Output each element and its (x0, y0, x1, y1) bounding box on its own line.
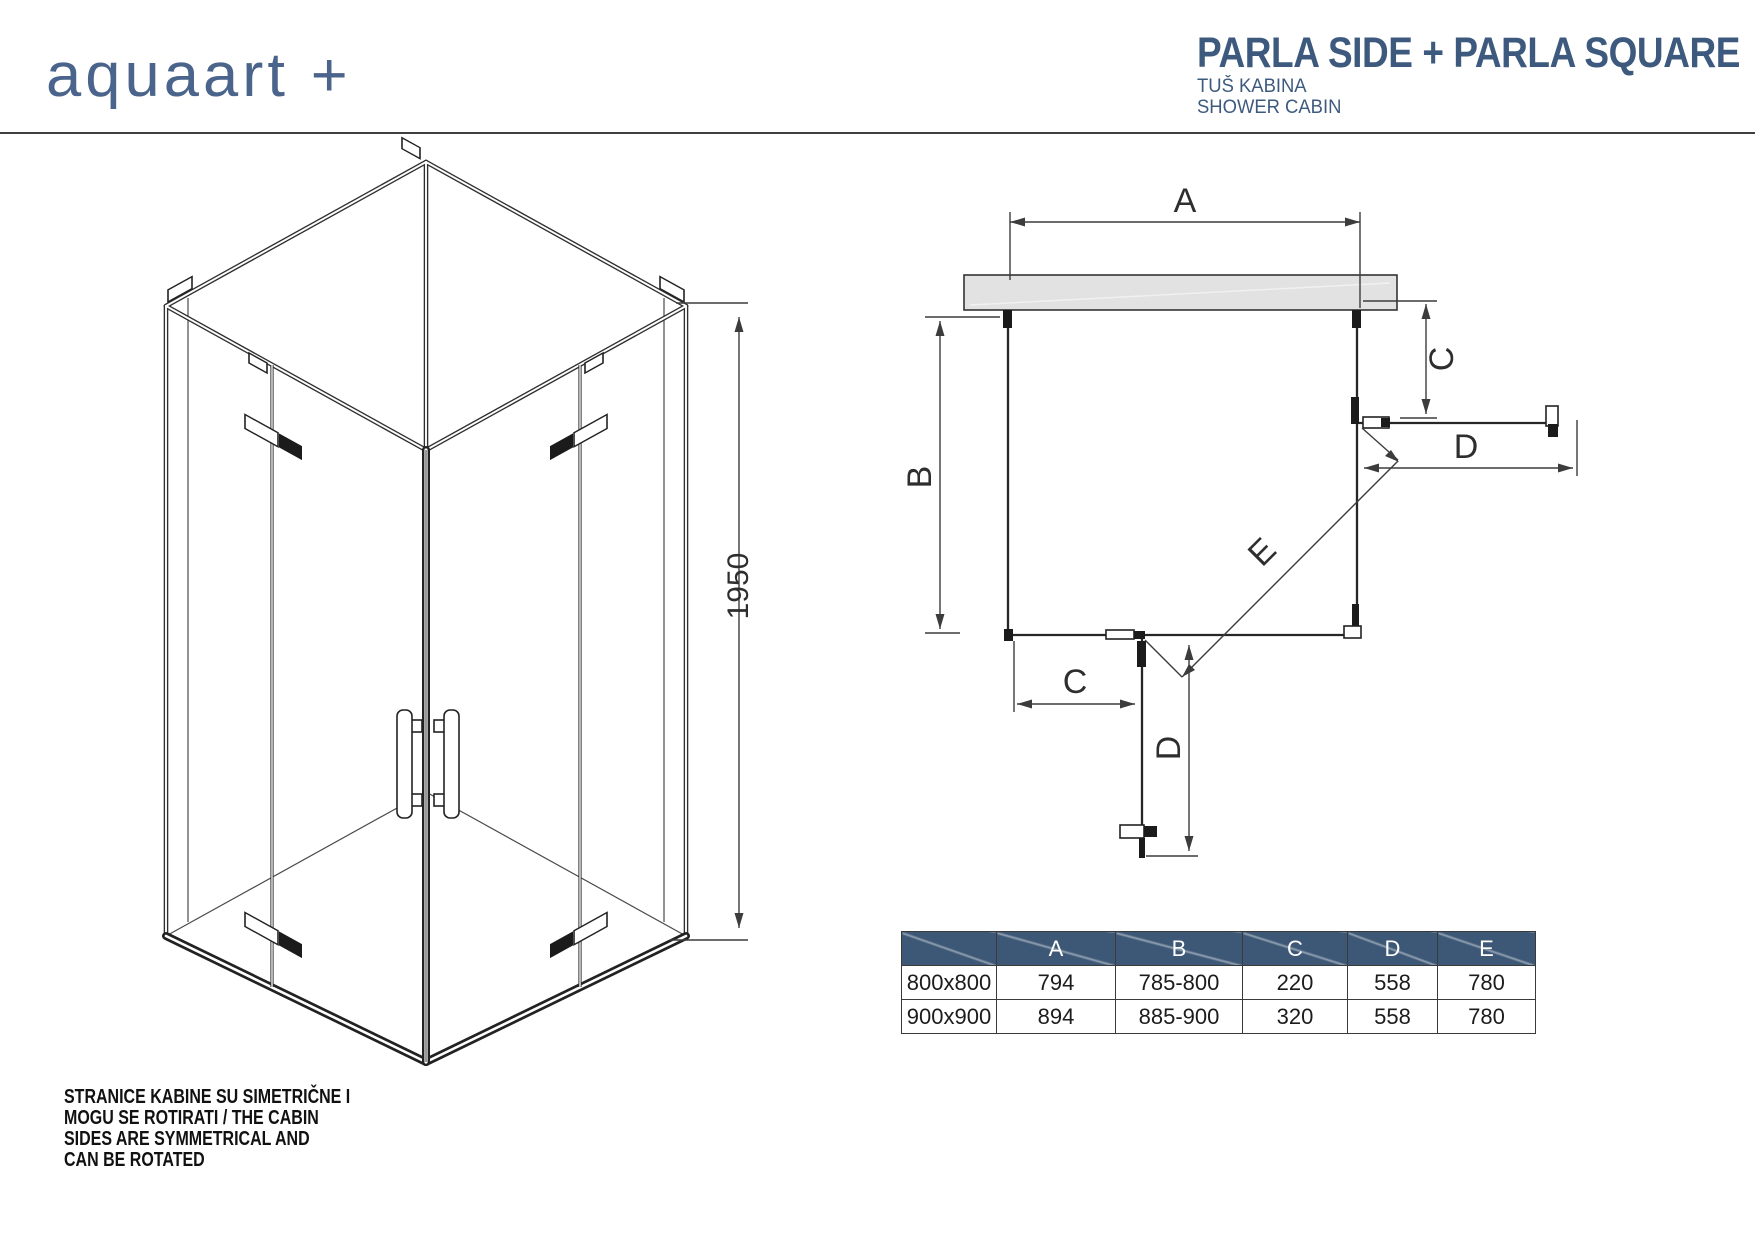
size-table-header-b: B (1116, 932, 1243, 966)
value-b: 885-900 (1116, 1000, 1243, 1034)
plan-dim-d-right: D (1364, 420, 1577, 476)
value-d: 558 (1348, 1000, 1438, 1034)
note-line: MOGU SE ROTIRATI / THE CABIN (64, 1108, 350, 1129)
iso-height-label: 1950 (722, 553, 755, 620)
symmetry-note: STRANICE KABINE SU SIMETRIČNE I MOGU SE … (64, 1087, 350, 1171)
size-table-header-e: E (1438, 932, 1536, 966)
plan-dim-c-right-label: C (1423, 347, 1461, 372)
plan-dim-d-bottom-label: D (1150, 736, 1188, 761)
size-table-header-a: A (997, 932, 1116, 966)
value-e: 780 (1438, 1000, 1536, 1034)
spec-sheet: aquaart + PARLA SIDE + PARLA SQUARE TUŠ … (0, 0, 1755, 1241)
isometric-cabin-drawing: 1950 (130, 140, 790, 1090)
note-line: CAN BE ROTATED (64, 1150, 350, 1171)
iso-height-dimension: 1950 (670, 303, 755, 940)
subtitle-croatian: TUŠ KABINA (1197, 76, 1755, 97)
title-block: PARLA SIDE + PARLA SQUARE TUŠ KABINA SHO… (1197, 30, 1755, 118)
plan-dim-c-right: C (1363, 301, 1461, 418)
size-table-header-row: A B C D E (902, 932, 1536, 966)
plan-dim-c-bottom-label: C (1063, 663, 1088, 701)
header-divider (0, 132, 1755, 134)
brand-logo: aquaart + (46, 40, 352, 111)
value-c: 220 (1243, 966, 1348, 1000)
size-table-header-d: D (1348, 932, 1438, 966)
value-a: 894 (997, 1000, 1116, 1034)
note-line: STRANICE KABINE SU SIMETRIČNE I (64, 1087, 350, 1108)
plan-hardware (1003, 310, 1558, 858)
plan-view-drawing: A B C D C (900, 150, 1600, 870)
plan-dim-b: B (901, 317, 1000, 633)
plan-dim-e: E (1145, 428, 1399, 677)
table-row: 800x800 794 785-800 220 558 780 (902, 966, 1536, 1000)
value-a: 794 (997, 966, 1116, 1000)
subtitle-english: SHOWER CABIN (1197, 97, 1755, 118)
size-table: A B C D E 800x800 794 785-800 220 558 78… (901, 931, 1536, 1034)
value-e: 780 (1438, 966, 1536, 1000)
plan-wall (964, 275, 1397, 310)
plan-dim-a-label: A (1174, 182, 1197, 220)
plan-dim-d-right-label: D (1454, 428, 1479, 466)
plan-dim-e-label: E (1241, 531, 1284, 574)
plan-dim-b-label: B (901, 466, 939, 489)
size-cell: 800x800 (902, 966, 997, 1000)
value-c: 320 (1243, 1000, 1348, 1034)
note-line: SIDES ARE SYMMETRICAL AND (64, 1129, 350, 1150)
value-d: 558 (1348, 966, 1438, 1000)
size-table-header-blank (902, 932, 997, 966)
plan-glass-panels (1008, 310, 1546, 840)
size-cell: 900x900 (902, 1000, 997, 1034)
size-table-header-c: C (1243, 932, 1348, 966)
value-b: 785-800 (1116, 966, 1243, 1000)
table-row: 900x900 894 885-900 320 558 780 (902, 1000, 1536, 1034)
page-title: PARLA SIDE + PARLA SQUARE (1197, 30, 1740, 76)
plan-dim-d-bottom: D (1146, 645, 1198, 856)
plan-dim-c-bottom: C (1014, 641, 1135, 712)
